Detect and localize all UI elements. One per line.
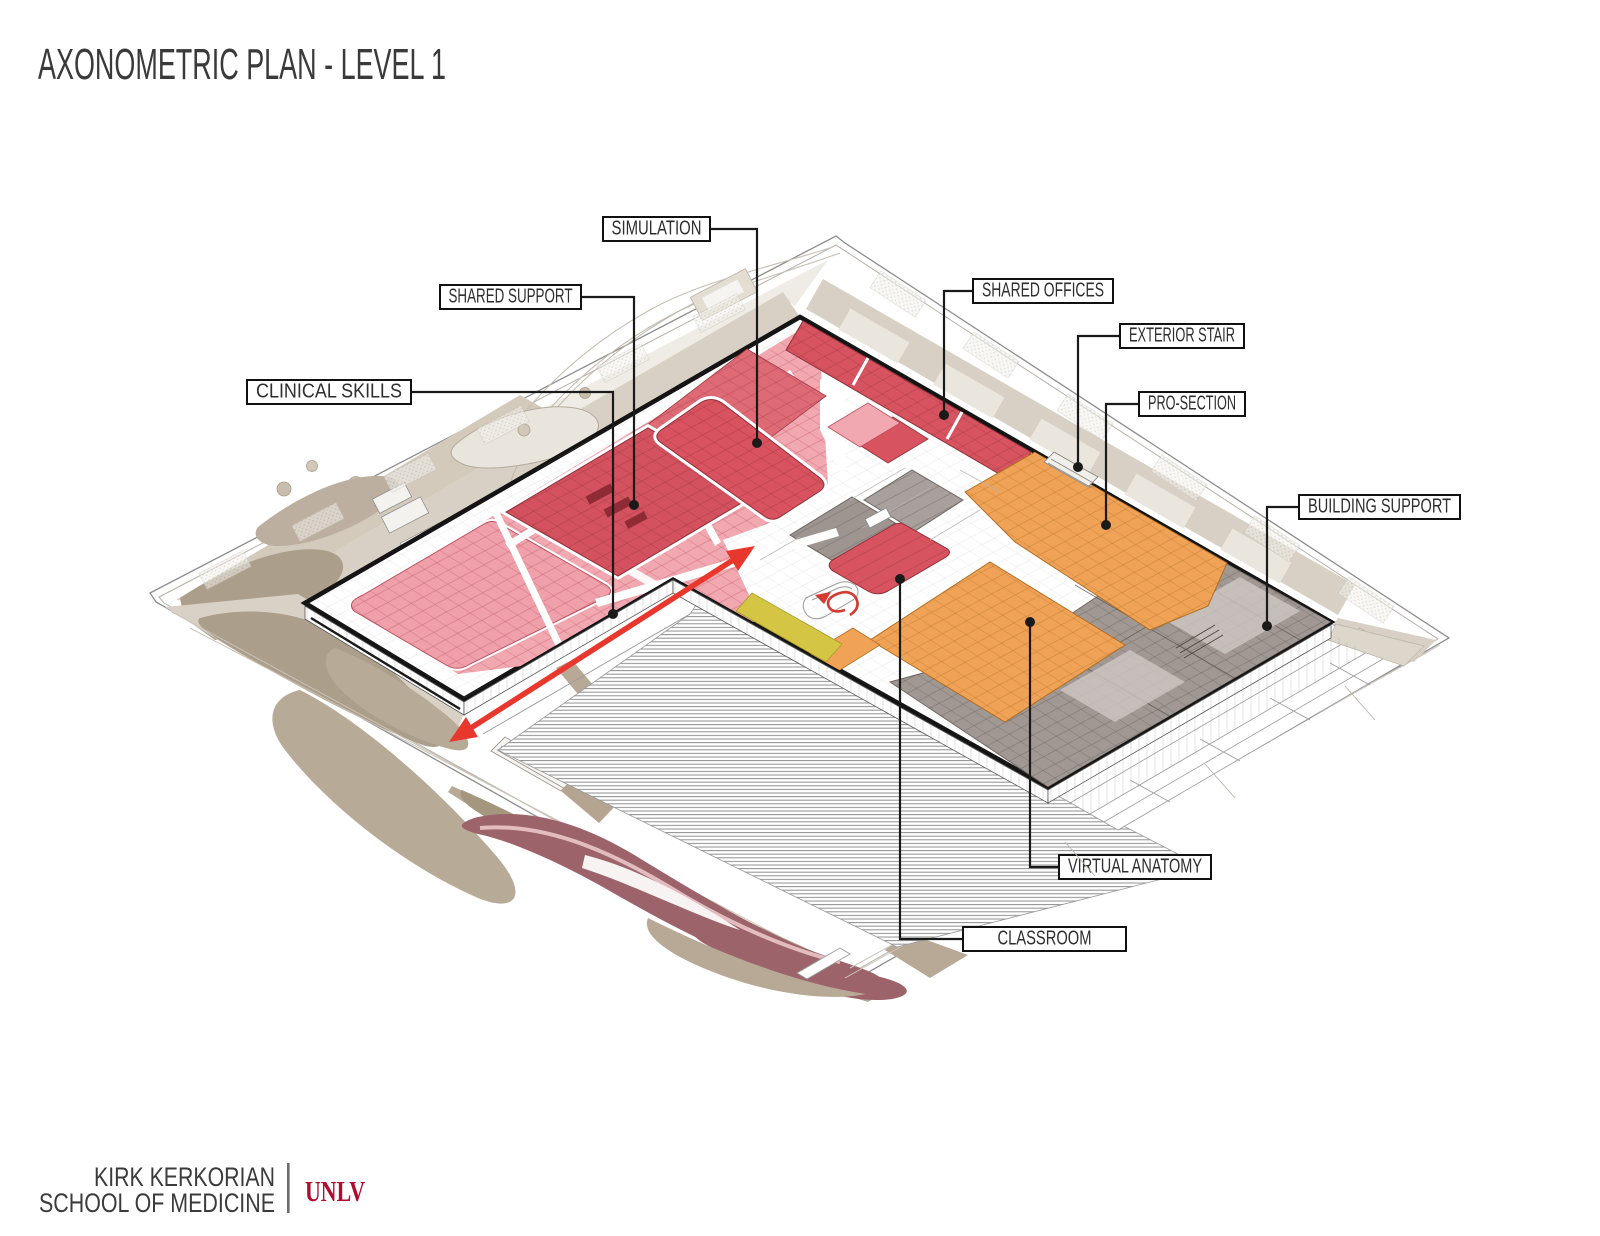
svg-text:SIMULATION: SIMULATION <box>612 218 702 240</box>
svg-text:SHARED OFFICES: SHARED OFFICES <box>982 280 1104 302</box>
svg-text:PRO-SECTION: PRO-SECTION <box>1148 393 1236 415</box>
svg-text:EXTERIOR STAIR: EXTERIOR STAIR <box>1129 325 1235 347</box>
svg-text:AXONOMETRIC PLAN - LEVEL 1: AXONOMETRIC PLAN - LEVEL 1 <box>38 40 446 89</box>
svg-text:SCHOOL OF MEDICINE: SCHOOL OF MEDICINE <box>39 1188 275 1218</box>
svg-text:VIRTUAL ANATOMY: VIRTUAL ANATOMY <box>1068 856 1202 878</box>
svg-text:SHARED SUPPORT: SHARED SUPPORT <box>449 286 573 308</box>
svg-text:CLASSROOM: CLASSROOM <box>998 928 1092 950</box>
svg-text:BUILDING SUPPORT: BUILDING SUPPORT <box>1308 496 1451 518</box>
svg-text:CLINICAL SKILLS: CLINICAL SKILLS <box>256 381 402 403</box>
svg-text:UNLV: UNLV <box>305 1177 365 1208</box>
